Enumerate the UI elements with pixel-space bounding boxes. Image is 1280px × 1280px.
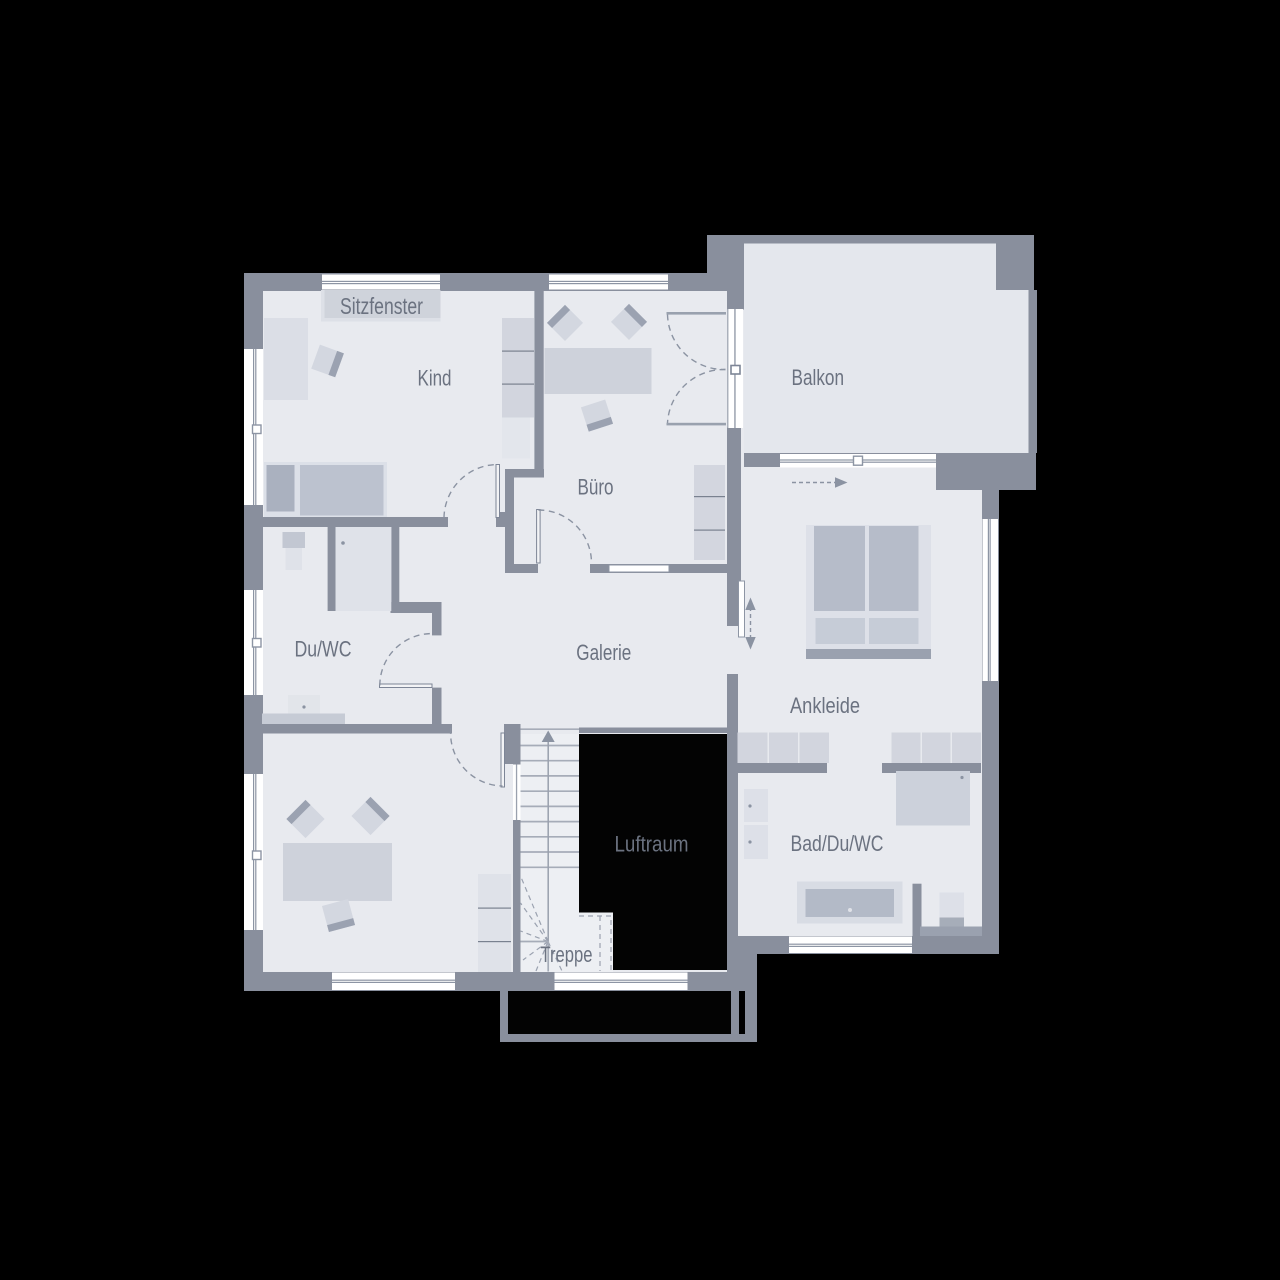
svg-text:Sitzfenster: Sitzfenster	[340, 293, 423, 319]
svg-text:Büro: Büro	[578, 475, 614, 500]
svg-text:Ankleide: Ankleide	[790, 693, 860, 718]
svg-text:Treppe: Treppe	[541, 942, 593, 967]
svg-text:Kind: Kind	[418, 366, 452, 391]
svg-text:Du/WC: Du/WC	[295, 637, 352, 662]
svg-text:Balkon: Balkon	[792, 365, 845, 390]
svg-text:Luftraum: Luftraum	[615, 832, 689, 857]
svg-text:Bad/Du/WC: Bad/Du/WC	[791, 831, 884, 856]
svg-text:Galerie: Galerie	[576, 640, 631, 665]
